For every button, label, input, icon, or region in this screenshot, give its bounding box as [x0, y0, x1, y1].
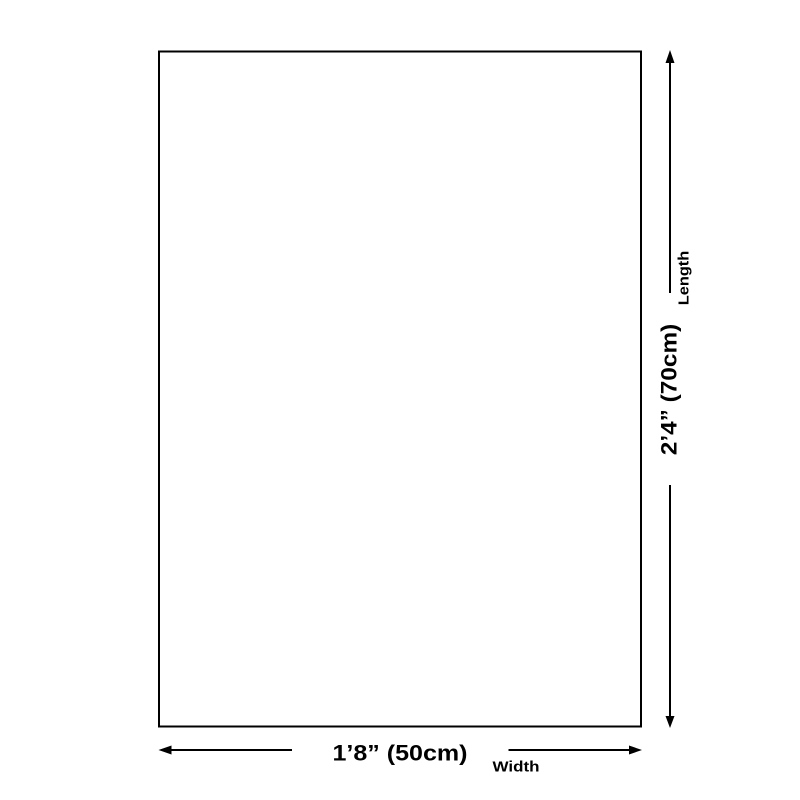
svg-text:2’4” (70cm): 2’4” (70cm) [657, 324, 682, 456]
svg-text:Length: Length [676, 251, 693, 306]
svg-text:Width: Width [493, 759, 540, 776]
svg-text:1’8” (50cm): 1’8” (50cm) [333, 741, 468, 766]
